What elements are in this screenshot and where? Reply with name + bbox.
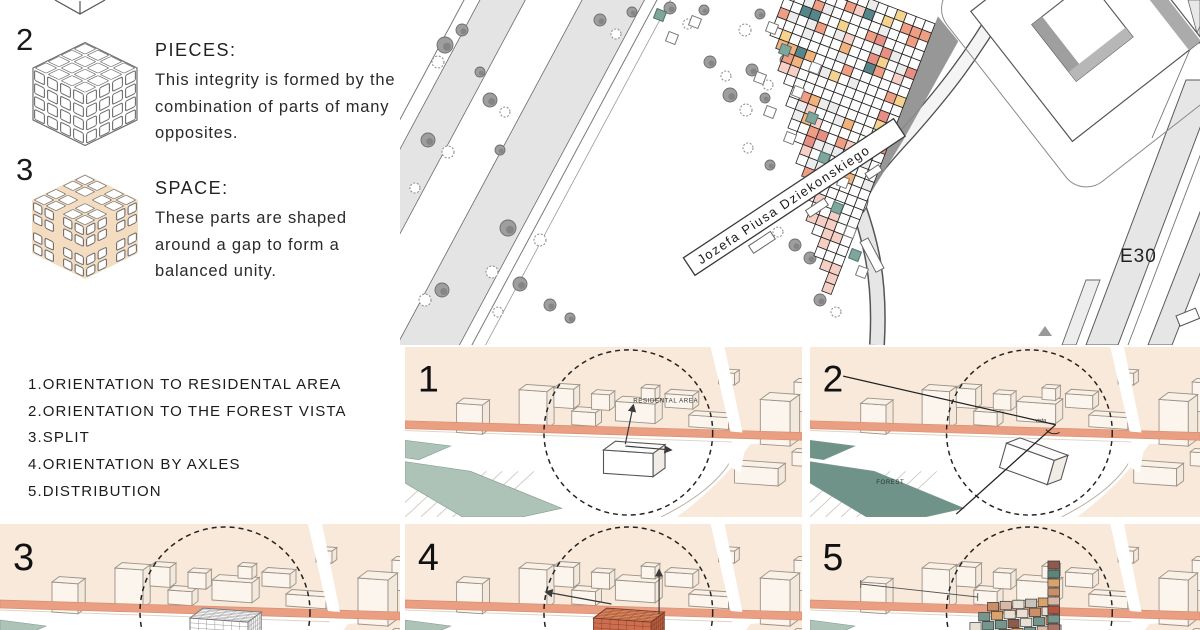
tree-symbol — [789, 239, 801, 251]
process-steps-list: 1.ORIENTATION TO RESIDENTAL AREA 2.ORIEN… — [28, 372, 347, 505]
tree-symbol — [739, 24, 751, 36]
panel-number: 3 — [13, 537, 34, 579]
panel-1-orientation-residential: RESIDENTAL AREA1 — [405, 347, 802, 517]
panel-3-split: 3 — [0, 524, 400, 630]
tree-symbol — [534, 234, 546, 246]
tree-symbol — [495, 145, 505, 155]
tree-symbol — [435, 283, 449, 297]
step-1: 1.ORIENTATION TO RESIDENTAL AREA — [28, 372, 347, 399]
tree-symbol — [419, 294, 431, 306]
tree-symbol — [544, 299, 556, 311]
tree-symbol — [743, 143, 753, 153]
concept-2-title: PIECES: — [155, 40, 407, 61]
tree-symbol — [627, 7, 637, 17]
panel-number: 2 — [823, 359, 844, 400]
panel-scene: RESIDENTAL AREA1 — [405, 347, 802, 517]
tree-symbol — [699, 5, 709, 15]
panel-number: 1 — [418, 358, 439, 400]
concept-board: 2 PIECES: This integrity is formed by th… — [0, 0, 1200, 630]
tree-symbol — [565, 313, 575, 323]
tree-symbol — [723, 88, 737, 102]
mosaic-building — [691, 0, 964, 305]
step-4: 4.ORIENTATION BY AXLES — [28, 452, 347, 479]
concept-3-text: SPACE: These parts are shaped around a g… — [155, 178, 370, 285]
tree-symbol — [760, 93, 770, 103]
tree-symbol — [831, 307, 841, 317]
pieces-cube-diagram — [28, 38, 150, 150]
tree-symbol — [410, 183, 420, 193]
panel-scene: 4 — [405, 524, 802, 630]
vista-label: vista — [1035, 418, 1046, 424]
concept-3-body: These parts are shaped around a gap to f… — [155, 205, 370, 285]
cube-1-partial — [40, 0, 170, 20]
panel-number: 4 — [418, 537, 439, 579]
panel-2-orientation-forest: vistaFOREST2 — [810, 347, 1200, 517]
tree-symbol — [432, 56, 444, 68]
panel-scene: 5 — [810, 524, 1200, 630]
step-2: 2.ORIENTATION TO THE FOREST VISTA — [28, 399, 347, 426]
step-5: 5.DISTRIBUTION — [28, 479, 347, 506]
tree-symbol — [755, 9, 765, 19]
tree-symbol — [814, 294, 826, 306]
tree-symbol — [483, 93, 497, 107]
panel-5-distribution: 5 — [810, 524, 1200, 630]
site-plan-map: E30Jozefa Piusa Dziekonskiego — [400, 0, 1200, 345]
tree-symbol — [437, 37, 453, 53]
tree-symbol — [475, 67, 485, 77]
tree-symbol — [773, 227, 783, 237]
panel-variant-layer — [190, 608, 261, 630]
tree-symbol — [493, 307, 503, 317]
tree-symbol — [486, 266, 498, 278]
e30-label: E30 — [1120, 246, 1157, 267]
panel-scene: 3 — [0, 524, 400, 630]
concept-2-text: PIECES: This integrity is formed by the … — [155, 40, 407, 147]
tree-symbol — [500, 107, 510, 117]
tree-symbol — [765, 160, 775, 170]
tree-symbol — [500, 220, 516, 236]
panel-number: 5 — [823, 536, 844, 579]
forest-label: FOREST — [876, 480, 904, 486]
tree-symbol — [442, 146, 454, 158]
panel-4-orientation-axles: 4 — [405, 524, 802, 630]
tree-symbol — [421, 133, 435, 147]
tree-symbol — [456, 24, 468, 36]
concept-2-body: This integrity is formed by the combinat… — [155, 67, 407, 147]
concept-3-title: SPACE: — [155, 178, 370, 199]
tree-symbol — [513, 277, 527, 291]
residential-area-label: RESIDENTAL AREA — [633, 397, 698, 404]
step-3: 3.SPLIT — [28, 425, 347, 452]
tree-symbol — [704, 56, 716, 68]
tree-symbol — [594, 14, 606, 26]
tree-symbol — [740, 104, 752, 116]
tree-symbol — [721, 71, 731, 81]
space-cube-diagram — [28, 170, 154, 288]
tree-symbol — [611, 29, 621, 39]
panel-scene: vistaFOREST2 — [810, 347, 1200, 517]
